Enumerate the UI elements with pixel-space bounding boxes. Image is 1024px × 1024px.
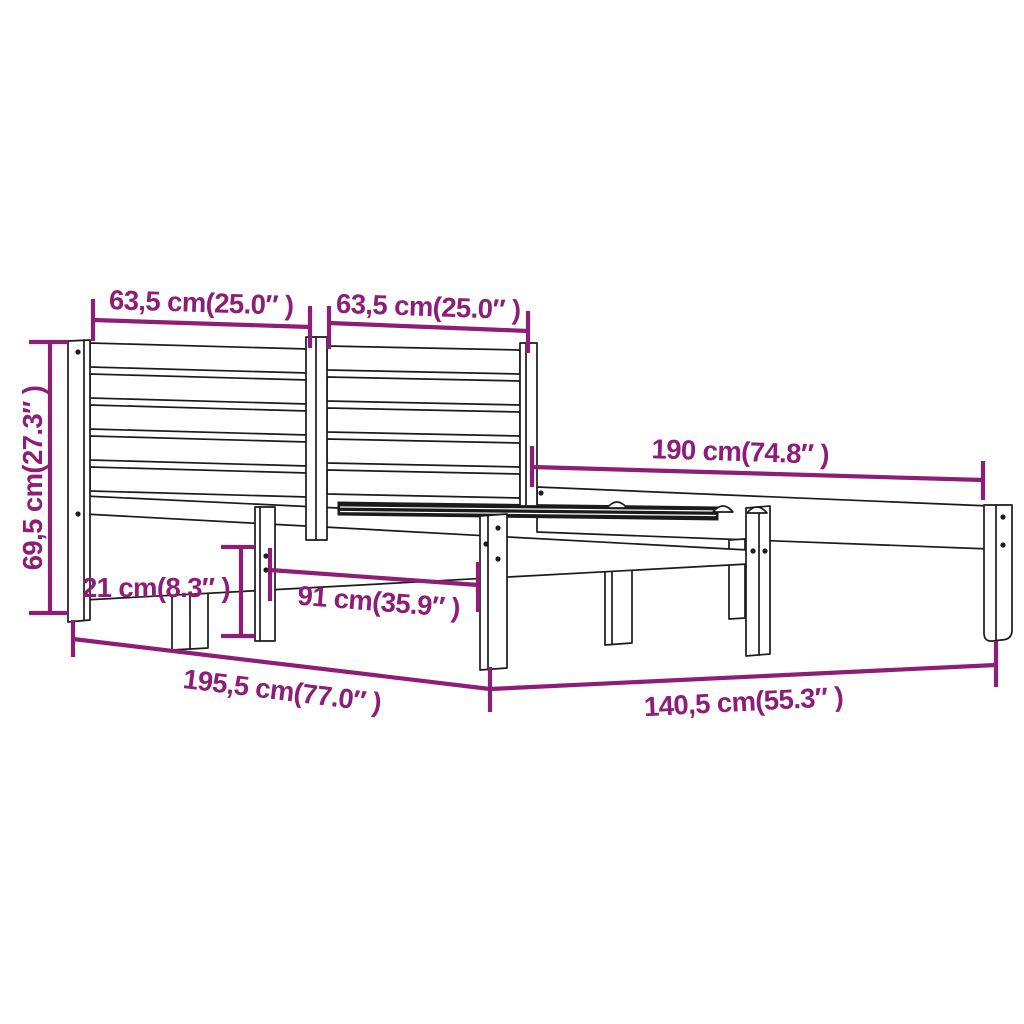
headboard-board bbox=[90, 343, 308, 373]
headboard-board bbox=[90, 436, 308, 466]
headboard-board bbox=[327, 408, 520, 436]
headboard-right-panel bbox=[327, 346, 520, 498]
dimension-label: 190 cm(74.8″ ) bbox=[651, 433, 829, 470]
headboard-board bbox=[327, 346, 520, 374]
headboard-board bbox=[90, 405, 308, 435]
foot-far-leg bbox=[984, 505, 1012, 641]
headboard-board bbox=[327, 439, 520, 467]
bed-frame-dimension-diagram: 63,5 cm(25.0″ ) 63,5 cm(25.0″ ) 69,5 cm(… bbox=[0, 0, 1024, 1024]
diagram-canvas: 63,5 cm(25.0″ ) 63,5 cm(25.0″ ) 69,5 cm(… bbox=[0, 0, 1024, 1024]
headboard-board bbox=[90, 374, 308, 404]
center-front-leg bbox=[480, 514, 507, 670]
dimension-label: 63,5 cm(25.0″ ) bbox=[109, 284, 294, 321]
dimension-label: 69,5 cm(27.3″ ) bbox=[17, 386, 48, 571]
near-right-leg bbox=[746, 506, 770, 656]
headboard-right-post bbox=[520, 343, 537, 506]
headboard-board bbox=[327, 377, 520, 405]
headboard-left-panel bbox=[90, 343, 308, 497]
dimension-label: 63,5 cm(25.0″ ) bbox=[336, 288, 522, 325]
headboard-board bbox=[90, 467, 308, 497]
headboard-center-post bbox=[306, 337, 327, 540]
dimension-label: 21 cm(8.3″ ) bbox=[82, 572, 230, 603]
headboard-board bbox=[327, 470, 520, 498]
